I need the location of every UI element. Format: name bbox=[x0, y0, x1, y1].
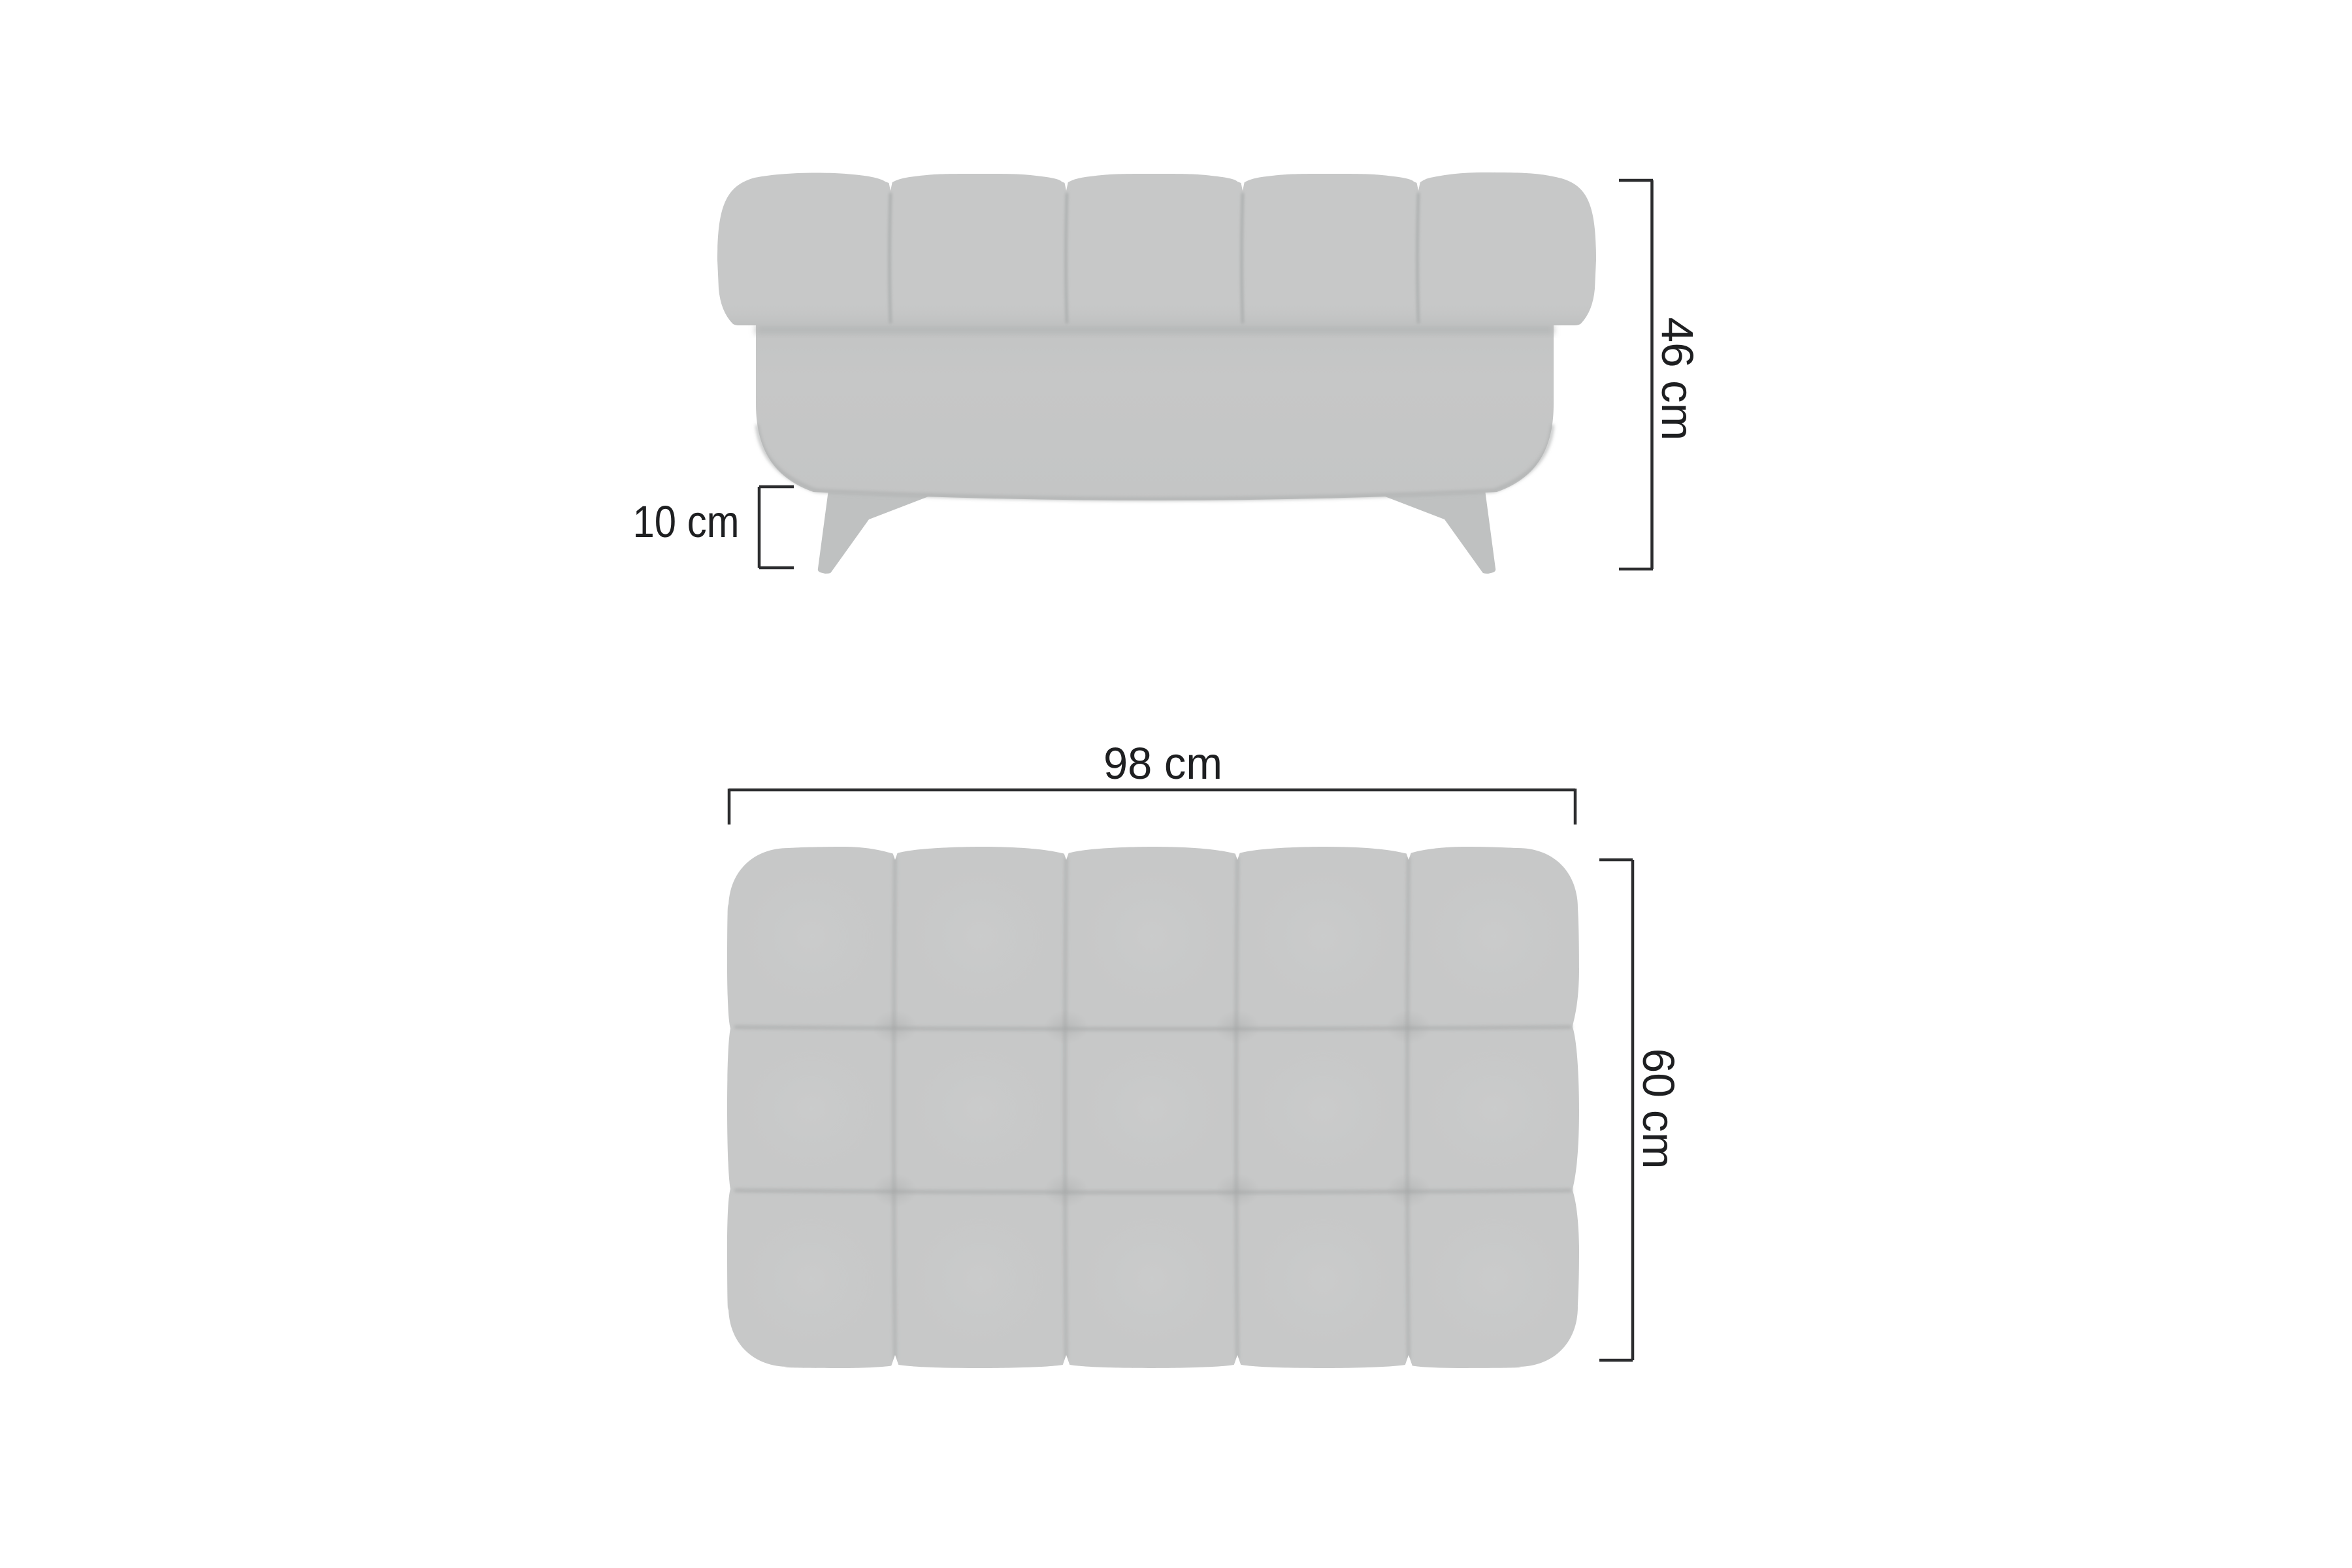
svg-text:60 cm: 60 cm bbox=[1633, 1049, 1684, 1169]
svg-text:98 cm: 98 cm bbox=[1103, 738, 1222, 789]
svg-text:10 cm: 10 cm bbox=[633, 497, 740, 547]
svg-text:46 cm: 46 cm bbox=[1652, 318, 1703, 441]
